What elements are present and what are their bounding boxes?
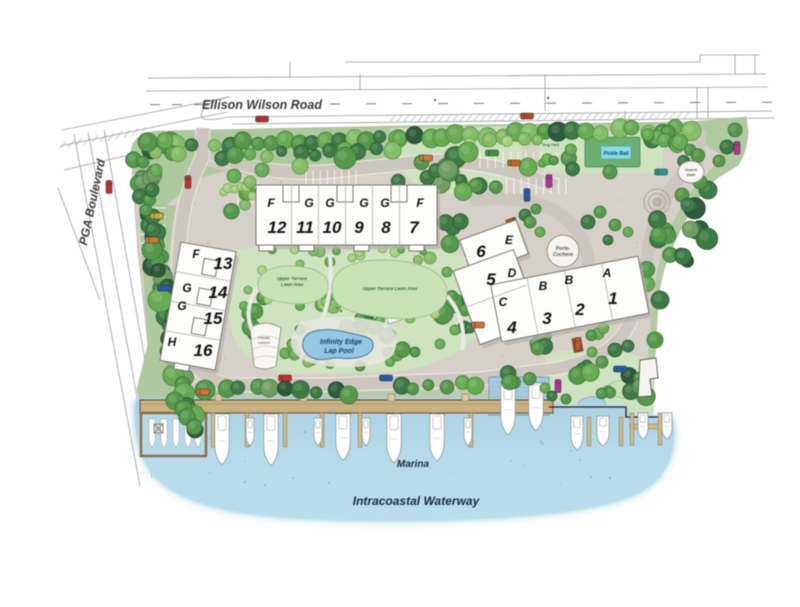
svg-text:C: C [499,295,508,309]
svg-text:E: E [505,233,514,247]
svg-text:G: G [182,281,191,295]
svg-text:10: 10 [323,218,342,237]
svg-text:B: B [565,273,574,287]
svg-text:Private: Private [258,336,270,340]
svg-text:Marina: Marina [397,459,430,470]
svg-text:Pickle Ball: Pickle Ball [603,151,629,157]
svg-text:1: 1 [608,289,617,308]
svg-text:Dog Park: Dog Park [543,143,561,147]
svg-text:H: H [168,335,177,349]
svg-text:14: 14 [209,283,228,302]
svg-text:A: A [602,266,612,280]
svg-text:4: 4 [506,318,517,337]
svg-text:2: 2 [574,300,585,319]
svg-text:11: 11 [296,218,314,237]
svg-text:3: 3 [542,309,552,328]
svg-text:Caterer: Caterer [258,341,271,345]
svg-text:12: 12 [268,218,287,237]
svg-text:Ellison Wilson Road: Ellison Wilson Road [202,98,322,112]
svg-text:9: 9 [354,218,364,237]
svg-text:G: G [380,196,389,210]
svg-text:8: 8 [381,218,391,237]
svg-text:Lap Pool: Lap Pool [324,348,355,355]
svg-text:Upper Terrace Lawn Area: Upper Terrace Lawn Area [363,286,418,291]
svg-text:F: F [267,196,275,210]
svg-text:Cochere: Cochere [553,252,573,258]
svg-text:16: 16 [194,341,213,360]
svg-text:G: G [325,196,334,210]
svg-text:G: G [177,299,186,313]
svg-text:6: 6 [476,242,486,261]
svg-text:Infinity Edge: Infinity Edge [320,339,362,346]
svg-text:Upper Terrace: Upper Terrace [277,276,308,281]
svg-text:D: D [508,266,517,280]
svg-text:15: 15 [204,309,223,328]
svg-text:G: G [304,196,313,210]
svg-text:F: F [192,247,200,261]
svg-text:G: G [359,196,368,210]
svg-text:F: F [416,196,424,210]
svg-text:Gate: Gate [687,172,697,177]
svg-text:7: 7 [409,218,420,237]
svg-text:13: 13 [214,254,233,273]
svg-text:5: 5 [486,270,496,289]
svg-text:Intracoastal Waterway: Intracoastal Waterway [353,494,481,508]
svg-text:Lawn Area: Lawn Area [281,282,304,287]
svg-text:B: B [539,279,548,293]
